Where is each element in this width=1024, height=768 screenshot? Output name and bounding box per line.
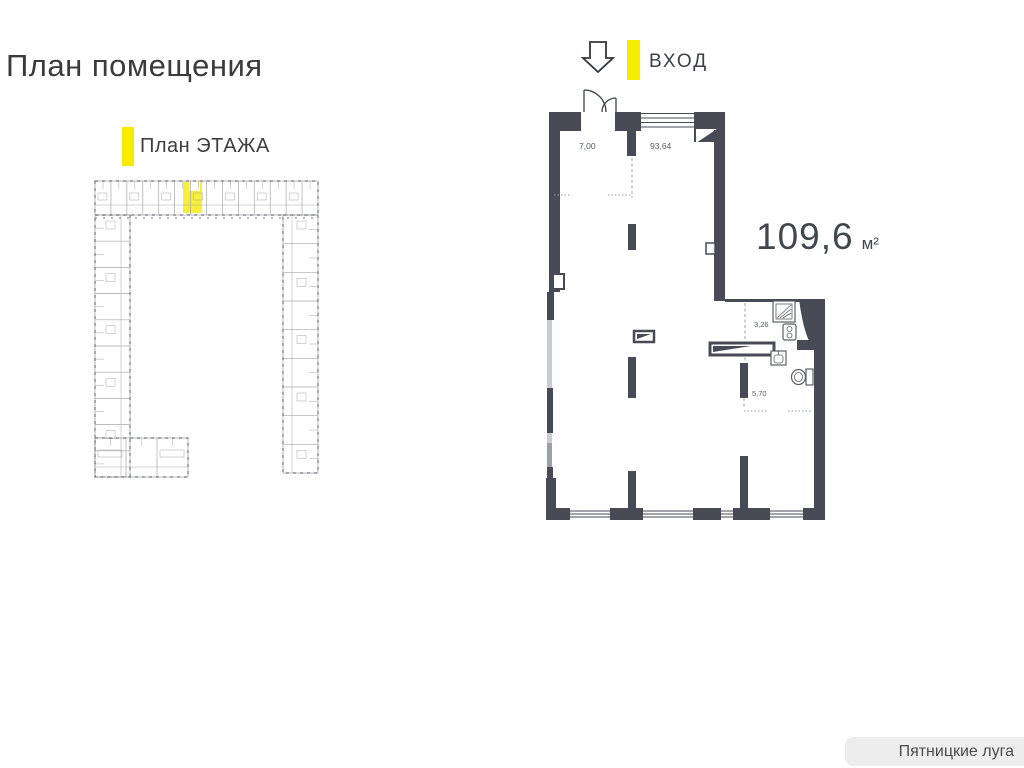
floor-overview-plan [93, 179, 321, 481]
total-area: 109,6 м² [756, 216, 879, 258]
shower-symbol [773, 301, 795, 322]
entrance-door-swing [584, 90, 616, 112]
room-area-label-hall: 7,00 [579, 141, 596, 151]
entrance-label: ВХОД [649, 51, 708, 72]
floor-plan-legend: План ЭТАЖА [122, 127, 270, 166]
legend-label: План ЭТАЖА [140, 135, 270, 158]
room-area-label-main: 93,64 [650, 141, 672, 151]
windows-group [570, 114, 803, 518]
total-area-unit: м² [862, 234, 879, 254]
basin-symbol [783, 324, 796, 340]
page-title: План помещения [6, 48, 263, 84]
apartment-plan: ВХОД [540, 30, 840, 530]
room-area-label-bath-large: 5,70 [752, 389, 767, 398]
entrance-arrow-icon [583, 42, 613, 72]
brand-badge: Пятницкие луга [845, 737, 1024, 766]
dashed-partitions [554, 158, 812, 411]
sink-symbol [771, 351, 786, 365]
room-area-labels: 7,00 93,64 3,26 5,70 [579, 141, 769, 398]
brand-label: Пятницкие луга [899, 743, 1014, 760]
entrance-accent-bar [627, 40, 640, 80]
room-area-label-bath-small: 3,26 [754, 320, 769, 329]
page-root: План помещения План ЭТАЖА ВХОД [0, 0, 1024, 768]
total-area-value: 109,6 [756, 216, 854, 258]
legend-accent-bar [122, 127, 134, 166]
fixtures-group [634, 301, 813, 385]
toilet-symbol [792, 369, 814, 385]
